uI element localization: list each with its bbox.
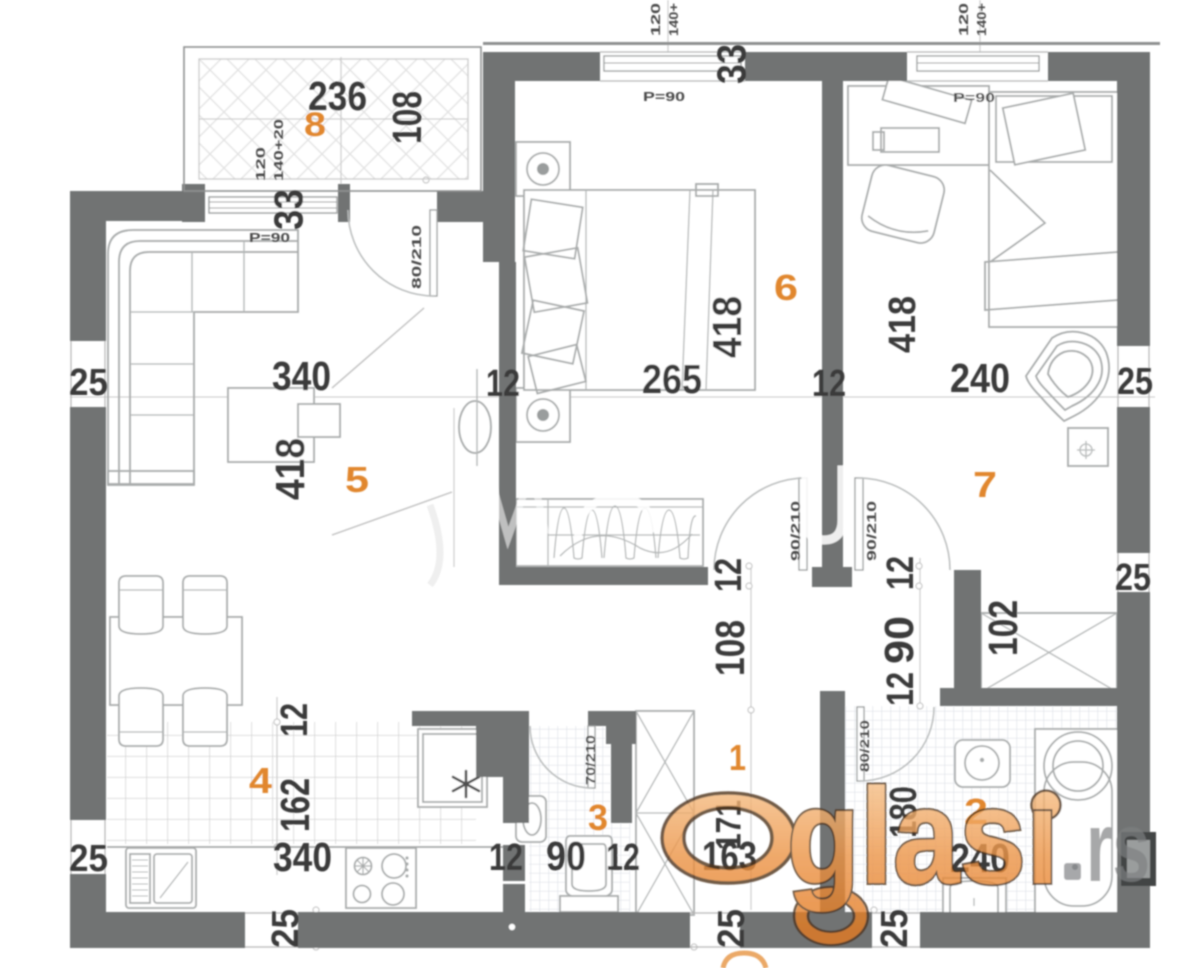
svg-text:340: 340 [272, 353, 331, 399]
svg-text:3: 3 [588, 797, 608, 838]
svg-text:140+: 140+ [666, 3, 681, 36]
svg-text:5: 5 [345, 459, 369, 500]
svg-text:P=90: P=90 [249, 230, 290, 245]
svg-text:25: 25 [874, 909, 916, 948]
svg-text:25: 25 [69, 362, 108, 404]
svg-text:108: 108 [707, 620, 753, 676]
svg-text:90: 90 [876, 616, 922, 664]
svg-text:12: 12 [880, 672, 922, 706]
svg-text:12: 12 [606, 837, 640, 879]
svg-text:7: 7 [973, 464, 997, 505]
svg-text:90/210: 90/210 [864, 501, 879, 561]
svg-text:P=90: P=90 [643, 89, 685, 104]
svg-text:rs: rs [1086, 791, 1150, 903]
svg-text:120: 120 [253, 147, 268, 181]
svg-text:265: 265 [642, 356, 702, 402]
svg-text:90: 90 [546, 833, 586, 879]
svg-text:1: 1 [729, 737, 746, 778]
svg-text:P=90: P=90 [953, 90, 995, 105]
svg-text:12: 12 [708, 558, 750, 592]
svg-text:162: 162 [272, 778, 318, 832]
svg-text:120: 120 [956, 3, 971, 36]
svg-text:140+: 140+ [974, 3, 989, 36]
svg-text:70/210: 70/210 [583, 735, 598, 785]
svg-text:12: 12 [489, 837, 523, 879]
svg-text:6: 6 [774, 267, 798, 308]
svg-text:25: 25 [1115, 557, 1151, 599]
svg-text:12: 12 [486, 363, 520, 405]
svg-text:12: 12 [880, 556, 922, 590]
svg-text:25: 25 [69, 838, 108, 880]
svg-text:120: 120 [648, 3, 663, 36]
svg-text:33: 33 [266, 189, 312, 230]
svg-text:418: 418 [704, 296, 750, 358]
svg-text:418: 418 [882, 296, 924, 353]
svg-text:102: 102 [980, 600, 1026, 656]
svg-text:12: 12 [812, 363, 846, 405]
svg-text:25: 25 [265, 909, 307, 948]
svg-text:340: 340 [273, 834, 332, 880]
svg-text:glası: glası [787, 760, 1059, 912]
svg-text:12: 12 [274, 703, 316, 737]
svg-text:140+20: 140+20 [271, 119, 286, 181]
svg-text:108: 108 [384, 91, 430, 144]
svg-text:4: 4 [249, 760, 272, 801]
svg-text:90/210: 90/210 [788, 501, 803, 561]
svg-text:25: 25 [1117, 361, 1153, 403]
svg-text:418: 418 [267, 438, 313, 500]
svg-text:33: 33 [709, 44, 755, 84]
svg-text:25: 25 [711, 909, 753, 948]
svg-text:8: 8 [304, 106, 326, 144]
svg-text:80/210: 80/210 [409, 225, 424, 289]
svg-text:240: 240 [950, 355, 1010, 401]
